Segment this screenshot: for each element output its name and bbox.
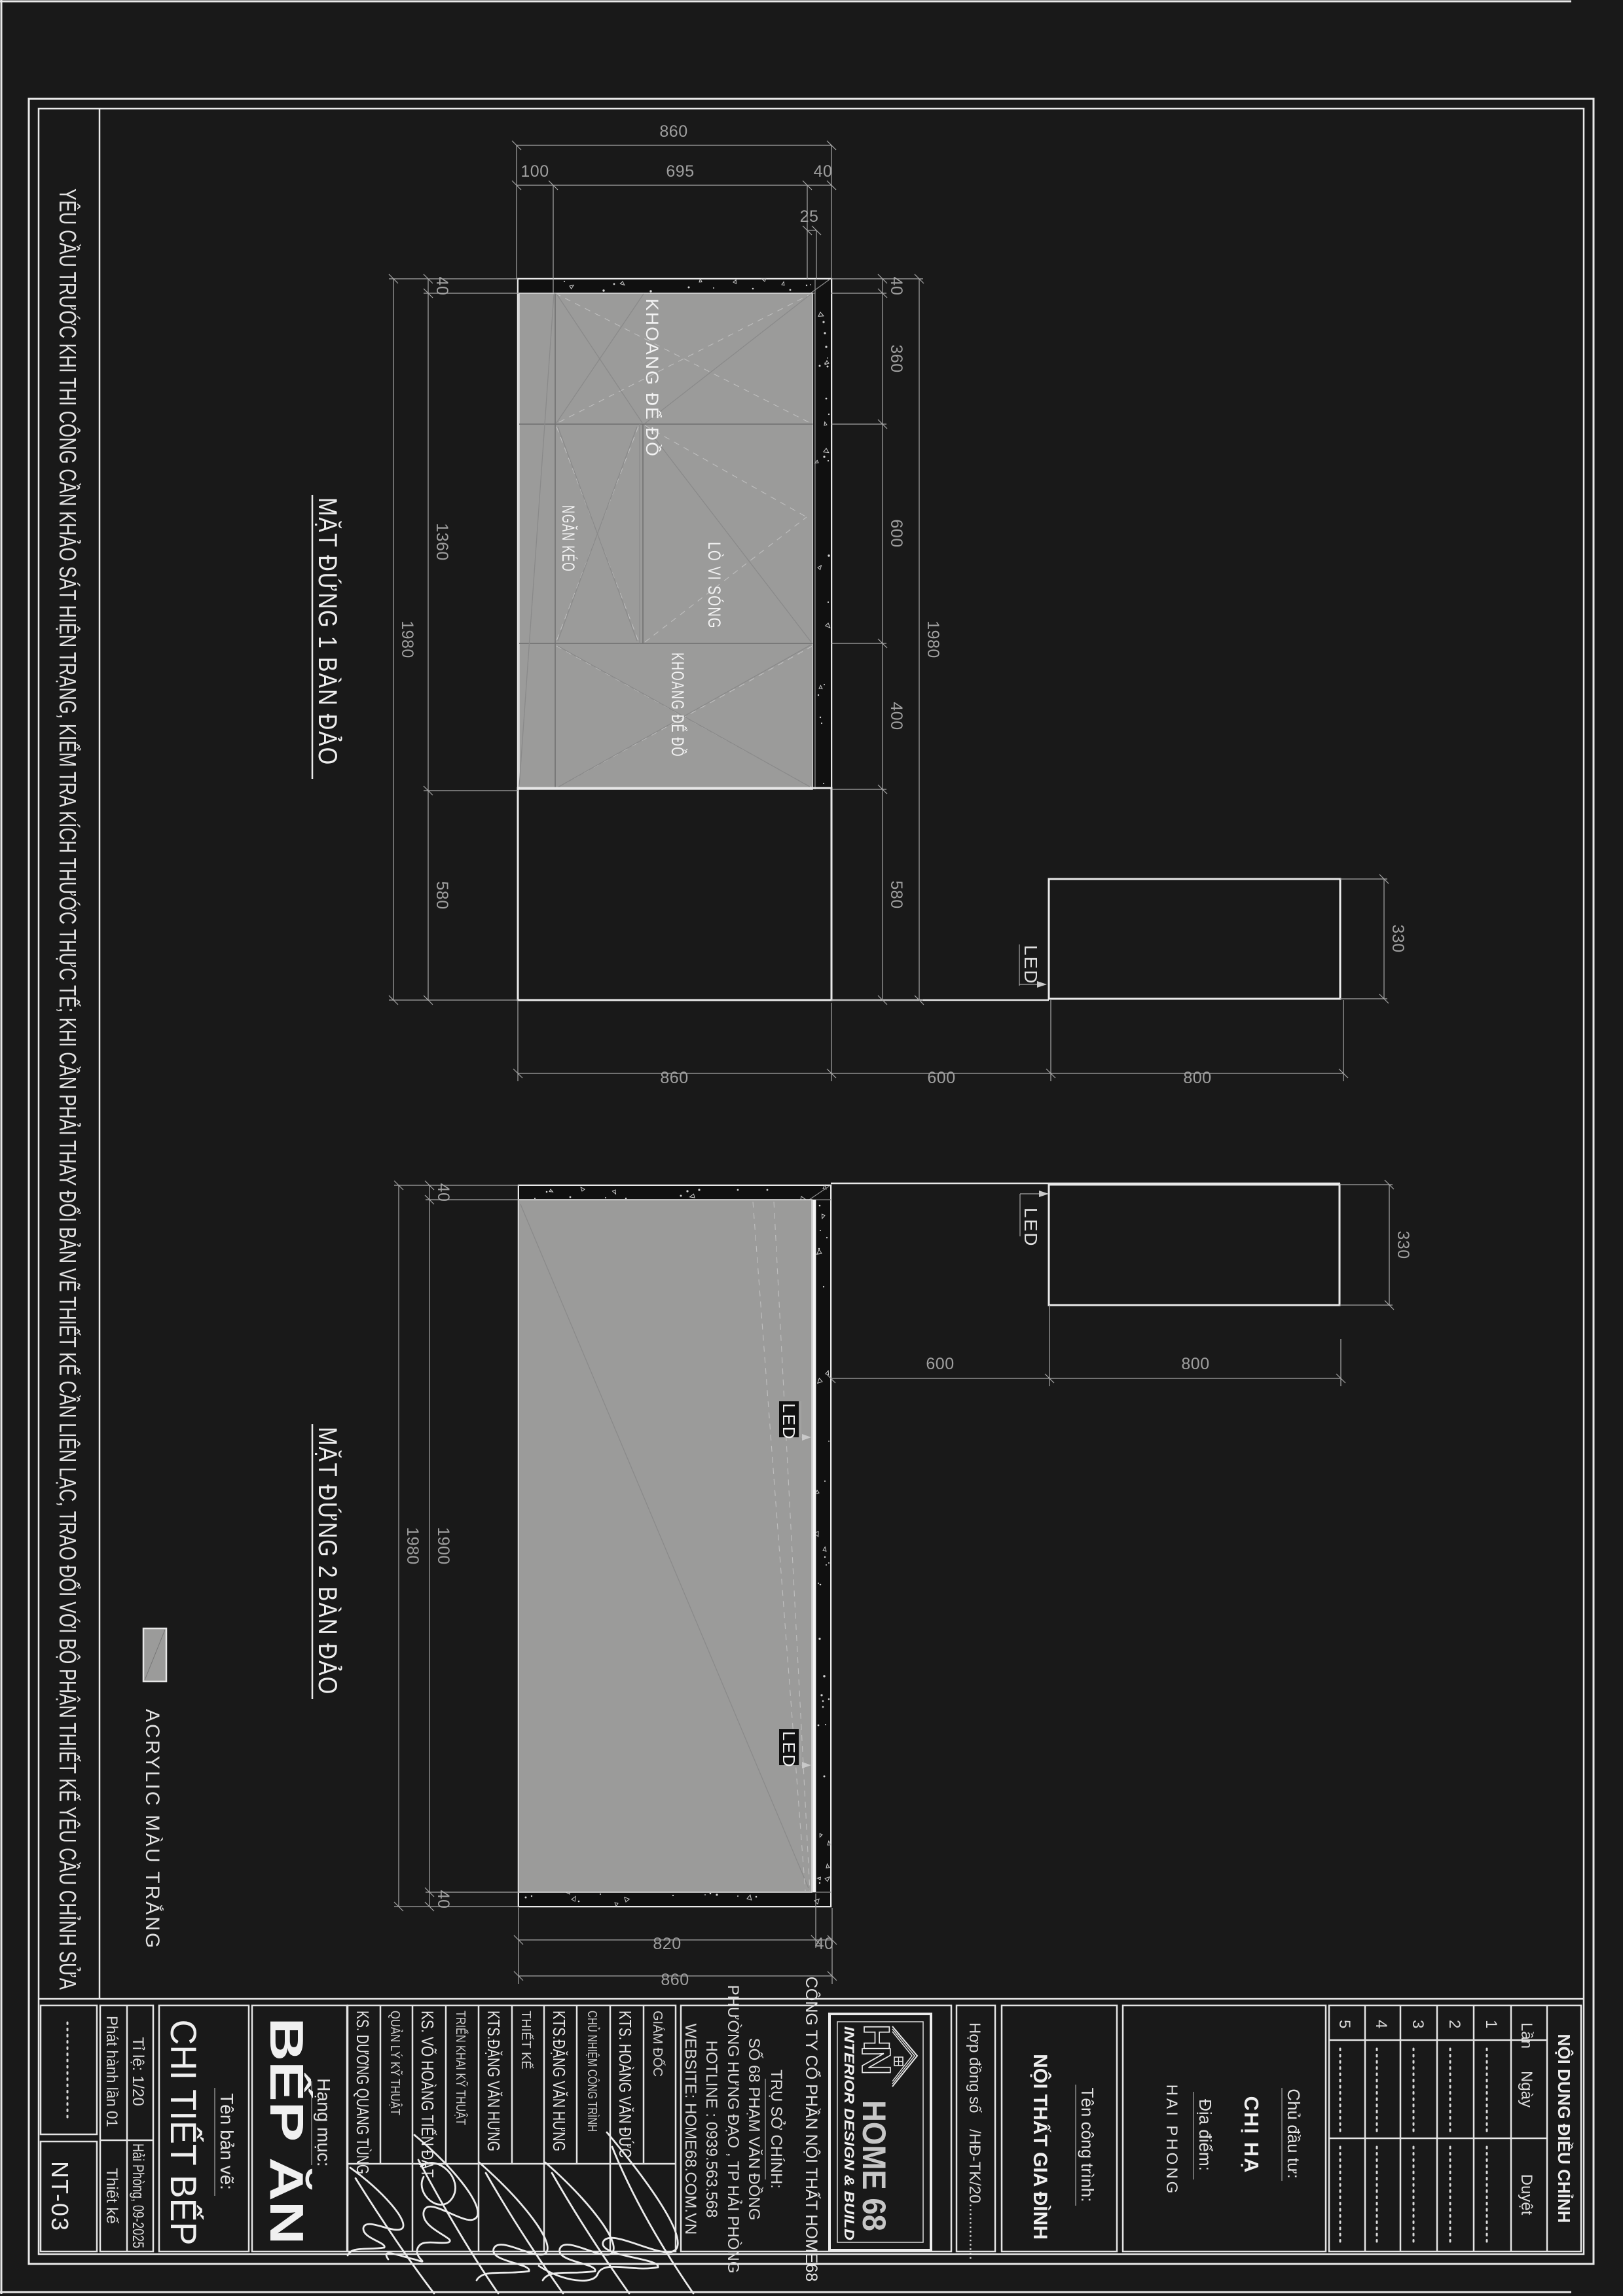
svg-text:Hợp đồng số: Hợp đồng số — [966, 2022, 983, 2113]
svg-text:600: 600 — [926, 1355, 954, 1373]
svg-text:2: 2 — [1446, 2020, 1463, 2028]
svg-text:Hạng mục:: Hạng mục: — [314, 2078, 334, 2166]
svg-text:820: 820 — [653, 1935, 681, 1953]
svg-text:360: 360 — [887, 344, 905, 372]
svg-text:WEBSITE: HOME68.COM.VN: WEBSITE: HOME68.COM.VN — [682, 2024, 699, 2235]
svg-text:KTS.ĐẶNG VĂN HƯNG: KTS.ĐẶNG VĂN HƯNG — [549, 2011, 569, 2151]
svg-text:N: N — [853, 2046, 898, 2075]
svg-text:YÊU CẦU TRƯỚC KHI THI CÔNG CẦN: YÊU CẦU TRƯỚC KHI THI CÔNG CẦN KHẢO SÁT … — [54, 188, 82, 1990]
svg-text:Tên công trình:: Tên công trình: — [1078, 2088, 1097, 2202]
svg-text:40: 40 — [434, 1183, 452, 1202]
svg-text:NT-03: NT-03 — [46, 2161, 73, 2232]
svg-text:40: 40 — [887, 277, 905, 296]
svg-text:CHỦ NHIỆM CÔNG TRÌNH: CHỦ NHIỆM CÔNG TRÌNH — [585, 2011, 600, 2132]
svg-text:HOME 68: HOME 68 — [856, 2100, 892, 2231]
svg-text:KS. DƯƠNG QUANG TÙNG: KS. DƯƠNG QUANG TÙNG — [353, 2011, 373, 2174]
svg-text:KHOANG ĐỂ ĐỒ: KHOANG ĐỂ ĐỒ — [668, 653, 688, 757]
svg-text:LÒ VI SÓNG: LÒ VI SÓNG — [704, 542, 725, 629]
svg-text:Phát hành lần 01: Phát hành lần 01 — [103, 2016, 120, 2127]
svg-text:THIẾT KẾ: THIẾT KẾ — [519, 2011, 534, 2070]
svg-text:PHƯỜNG HƯNG ĐẠO , TP HẢI PHÒNG: PHƯỜNG HƯNG ĐẠO , TP HẢI PHÒNG — [724, 1985, 743, 2274]
svg-text:1980: 1980 — [403, 1527, 422, 1565]
svg-text:40: 40 — [433, 277, 451, 296]
svg-text:LED: LED — [1021, 1208, 1041, 1247]
svg-text:400: 400 — [887, 702, 905, 730]
svg-text:MẶT ĐỨNG 2 BÀN ĐẢO: MẶT ĐỨNG 2 BÀN ĐẢO — [313, 1427, 343, 1695]
svg-text:KTS.ĐẶNG VĂN HƯNG: KTS.ĐẶNG VĂN HƯNG — [484, 2011, 503, 2151]
svg-text:Tỉ lệ: 1/20: Tỉ lệ: 1/20 — [129, 2037, 147, 2106]
svg-text:25: 25 — [800, 207, 819, 226]
svg-text:5: 5 — [1336, 2020, 1353, 2028]
svg-text:600: 600 — [927, 1069, 955, 1087]
svg-text:CHỊ HẠ: CHỊ HẠ — [1240, 2096, 1263, 2174]
svg-text:Tên bản vẽ:: Tên bản vẽ: — [217, 2093, 237, 2190]
svg-text:KTS. HOÀNG VĂN ĐỨC: KTS. HOÀNG VĂN ĐỨC — [615, 2011, 635, 2158]
svg-text:LED: LED — [779, 1731, 799, 1768]
svg-text:330: 330 — [1389, 924, 1407, 952]
svg-text:LED: LED — [1021, 945, 1041, 984]
svg-text:INTERIOR DESIGN & BUILD: INTERIOR DESIGN & BUILD — [841, 2026, 856, 2240]
svg-text:Duyệt: Duyệt — [1518, 2174, 1535, 2215]
svg-text:ACRYLIC MÀU TRẮNG: ACRYLIC MÀU TRẮNG — [141, 1709, 164, 1950]
svg-text:800: 800 — [1183, 1069, 1211, 1087]
svg-text:Ngày: Ngày — [1518, 2071, 1535, 2108]
svg-text:1: 1 — [1482, 2020, 1500, 2028]
svg-text:40: 40 — [434, 1890, 452, 1909]
svg-text:580: 580 — [887, 880, 905, 908]
svg-text:695: 695 — [666, 162, 694, 181]
svg-text:Chủ đầu tư:: Chủ đầu tư: — [1284, 2089, 1304, 2178]
svg-text:BẾP ĂN: BẾP ĂN — [260, 2018, 313, 2245]
svg-text:GIÁM ĐỐC: GIÁM ĐỐC — [650, 2011, 666, 2077]
svg-text:800: 800 — [1181, 1355, 1209, 1373]
svg-text:CHI TIẾT BẾP: CHI TIẾT BẾP — [163, 2020, 204, 2246]
svg-text:MẶT ĐỨNG 1 BÀN ĐẢO: MẶT ĐỨNG 1 BÀN ĐẢO — [313, 497, 343, 766]
svg-text:SỐ 68 PHẠM VĂN ĐỒNG: SỐ 68 PHẠM VĂN ĐỒNG — [745, 2038, 763, 2221]
svg-text:3: 3 — [1409, 2020, 1427, 2028]
svg-text:100: 100 — [520, 162, 549, 181]
svg-text:40: 40 — [815, 1935, 834, 1953]
svg-text:CÔNG TY CỔ PHẦN NỘI THẤT HOME6: CÔNG TY CỔ PHẦN NỘI THẤT HOME68 — [802, 1977, 822, 2282]
svg-text:330: 330 — [1394, 1230, 1412, 1259]
svg-text:Lần: Lần — [1518, 2022, 1535, 2049]
svg-text:1360: 1360 — [433, 523, 451, 561]
svg-text:Địa điểm:: Địa điểm: — [1195, 2099, 1215, 2171]
svg-text:4: 4 — [1372, 2020, 1390, 2028]
svg-text:TRIỂN KHAI KỸ THUẬT: TRIỂN KHAI KỸ THUẬT — [453, 2011, 469, 2125]
svg-text:NGĂN KÉO: NGĂN KÉO — [558, 505, 578, 572]
svg-text:600: 600 — [887, 519, 905, 547]
svg-text:/HĐ-TK/20.............: /HĐ-TK/20............. — [966, 2129, 983, 2260]
svg-text:NỘI THẤT GIA ĐÌNH: NỘI THẤT GIA ĐÌNH — [1029, 2054, 1051, 2240]
svg-text:HAI PHONG: HAI PHONG — [1163, 2085, 1180, 2197]
svg-text:1980: 1980 — [924, 620, 942, 658]
svg-text:LED: LED — [779, 1403, 799, 1441]
svg-text:860: 860 — [661, 1971, 689, 1989]
svg-text:NỘI DUNG ĐIỀU CHỈNH: NỘI DUNG ĐIỀU CHỈNH — [1554, 2034, 1574, 2223]
svg-text:QUẢN LÝ KỸ THUẬT: QUẢN LÝ KỸ THUẬT — [388, 2011, 403, 2115]
svg-text:580: 580 — [433, 881, 451, 909]
svg-text:1980: 1980 — [398, 620, 416, 658]
svg-text:HOTLINE : 0939.563.568: HOTLINE : 0939.563.568 — [702, 2041, 720, 2218]
svg-text:Thiết kế: Thiết kế — [103, 2168, 120, 2224]
svg-text:KHOANG ĐỂ ĐỒ: KHOANG ĐỂ ĐỒ — [642, 298, 663, 457]
svg-text:860: 860 — [659, 122, 687, 141]
svg-text:860: 860 — [660, 1069, 688, 1087]
svg-text:TRỤ SỞ CHÍNH:: TRỤ SỞ CHÍNH: — [767, 2070, 786, 2189]
svg-text:40: 40 — [814, 162, 833, 181]
svg-text:1900: 1900 — [434, 1527, 452, 1565]
svg-text:Hải Phòng, 09-2025: Hải Phòng, 09-2025 — [129, 2144, 147, 2248]
